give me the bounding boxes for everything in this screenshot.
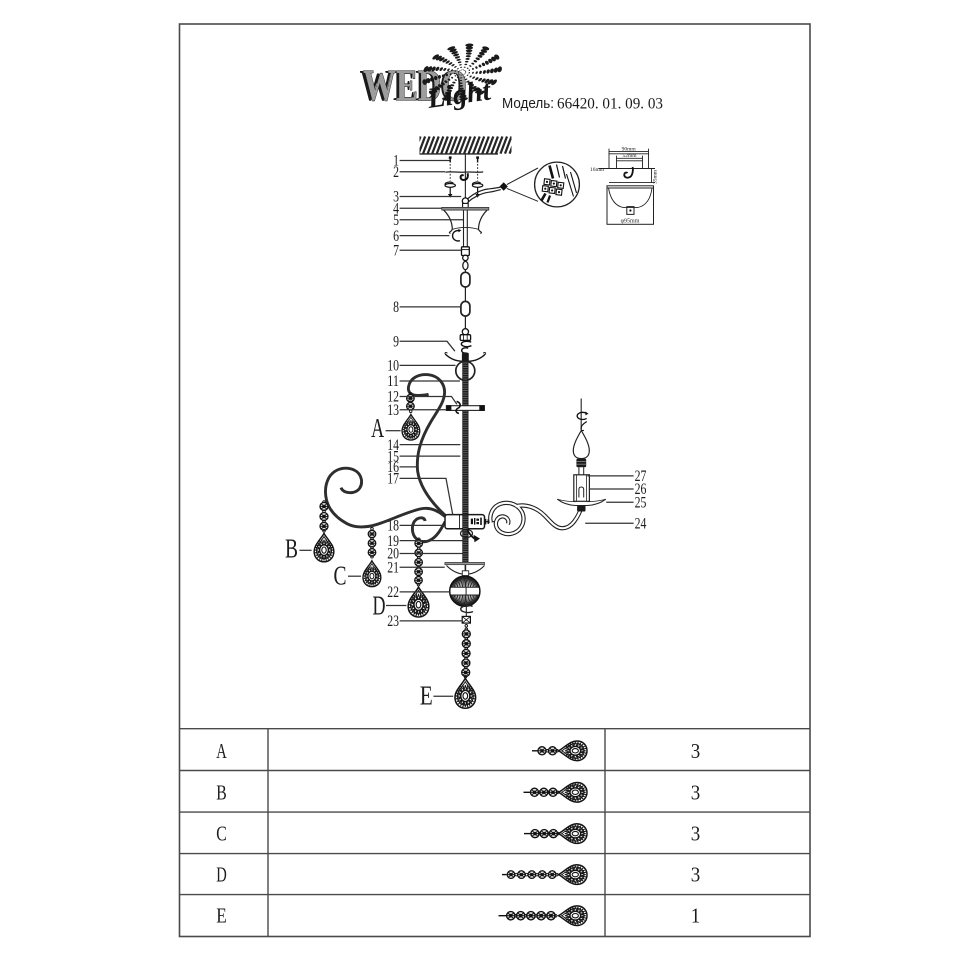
svg-text:22: 22 — [387, 584, 399, 601]
svg-text:10: 10 — [387, 358, 399, 375]
svg-text:B: B — [285, 533, 298, 563]
svg-text:A: A — [216, 739, 227, 763]
svg-text:B: B — [216, 780, 227, 804]
svg-text:φ95mm: φ95mm — [621, 219, 640, 225]
svg-text:21: 21 — [387, 560, 399, 577]
svg-text:Модель:: Модель: — [502, 96, 554, 112]
svg-text:D: D — [373, 591, 386, 621]
svg-text:2: 2 — [393, 164, 399, 181]
svg-text:13: 13 — [387, 402, 399, 419]
svg-text:C: C — [334, 561, 347, 591]
svg-text:23: 23 — [387, 613, 399, 630]
svg-text:1: 1 — [691, 904, 701, 928]
svg-text:16mm: 16mm — [590, 167, 605, 173]
svg-text:5: 5 — [393, 212, 399, 229]
svg-text:11: 11 — [387, 373, 399, 390]
svg-text:35mm: 35mm — [653, 169, 659, 184]
svg-text:66420. 01. 09. 03: 66420. 01. 09. 03 — [557, 96, 663, 113]
svg-text:3: 3 — [691, 739, 701, 763]
svg-text:7: 7 — [393, 243, 399, 260]
svg-text:25: 25 — [635, 495, 647, 512]
svg-text:D: D — [216, 863, 227, 887]
svg-text:A: A — [371, 413, 384, 443]
svg-text:3: 3 — [691, 822, 701, 846]
svg-text:17: 17 — [387, 471, 399, 488]
svg-text:E: E — [420, 681, 433, 711]
svg-text:3: 3 — [691, 863, 701, 887]
svg-text:C: C — [216, 822, 227, 846]
svg-text:9: 9 — [393, 334, 399, 351]
svg-text:8: 8 — [393, 299, 399, 316]
svg-text:90mm: 90mm — [622, 146, 637, 152]
svg-text:24: 24 — [635, 515, 647, 532]
svg-text:52mm: 52mm — [622, 153, 637, 159]
svg-text:3: 3 — [691, 780, 701, 804]
svg-text:E: E — [216, 904, 227, 928]
